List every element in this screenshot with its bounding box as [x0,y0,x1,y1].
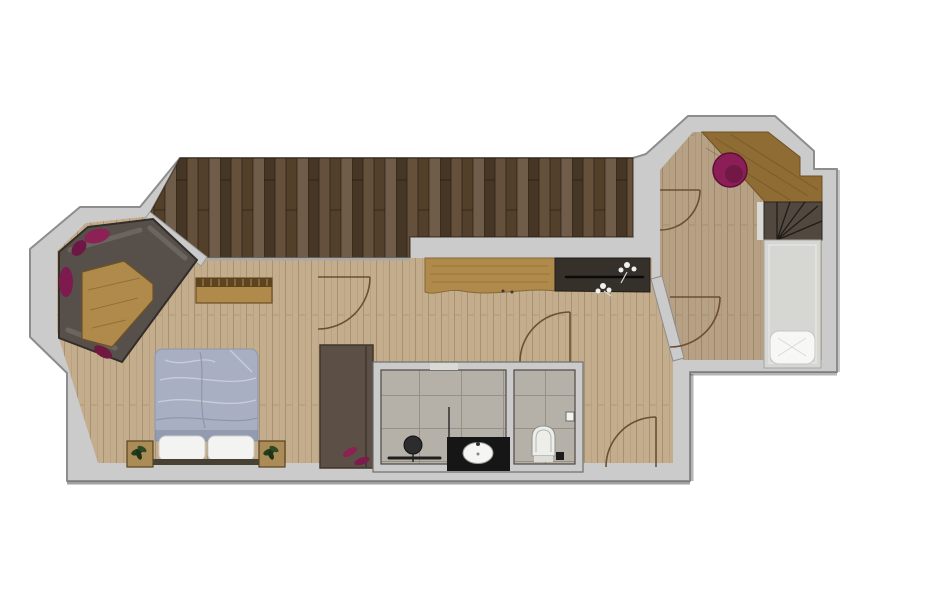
bathroom-door-gap [430,363,458,370]
floor-plan [0,0,940,599]
stair-landing [757,202,764,240]
sink-faucet [476,442,480,446]
bed-pillow-right [208,436,254,461]
headboard [152,459,261,465]
counter-area [425,258,650,296]
cushion-2 [59,267,73,297]
sink-drain [477,453,480,456]
wc-bin [556,452,564,460]
paper-holder [566,412,574,421]
live-edge-counter [425,258,555,293]
armchair-seat-shade [725,165,743,183]
bathroom [373,362,583,472]
toilet-base [534,456,553,462]
floor-plan-canvas [0,0,940,599]
bed-pillow-left [159,436,205,461]
counter-knob-1 [502,290,505,293]
bench-sideboard [196,278,272,303]
bench-top-strip [196,278,272,287]
winder-staircase [764,202,822,240]
bedroom-furniture [127,345,373,468]
round-mirror [404,436,422,454]
counter-knob-2 [511,291,514,294]
